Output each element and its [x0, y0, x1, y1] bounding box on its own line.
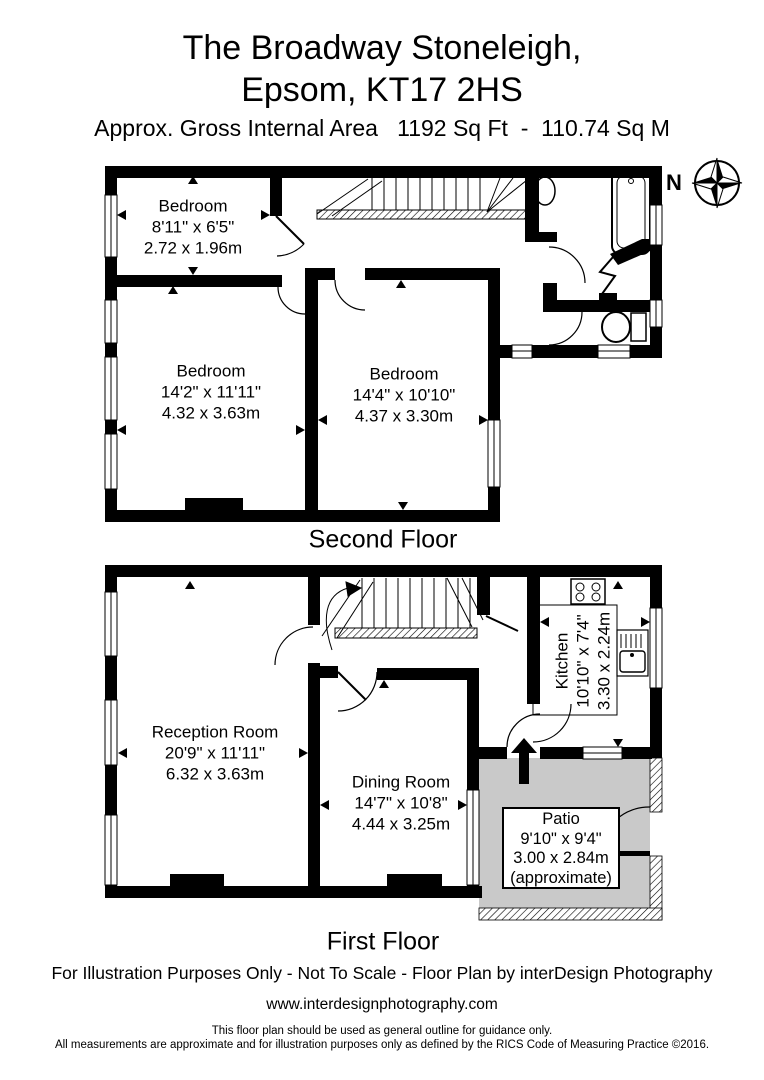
room-dims-imperial: 14'7" x 10'8"	[352, 793, 450, 814]
room-dims-metric: 2.72 x 1.96m	[144, 238, 242, 259]
room-dims-imperial: 14'2" x 11'11"	[161, 382, 261, 403]
room-name: Bedroom	[161, 361, 261, 382]
stairs-icon-first	[322, 578, 483, 650]
room-name: Bedroom	[144, 196, 242, 217]
compass-north-label: N	[666, 170, 682, 196]
room-label-bedroom-right: Bedroom 14'4" x 10'10" 4.37 x 3.30m	[353, 364, 456, 427]
room-name: Bedroom	[353, 364, 456, 385]
room-dims-metric: 4.37 x 3.30m	[353, 406, 456, 427]
room-label-bedroom-left: Bedroom 14'2" x 11'11" 4.32 x 3.63m	[161, 361, 261, 424]
footer-disclaimer-1: This floor plan should be used as genera…	[0, 1025, 764, 1037]
room-label-bedroom-small: Bedroom 8'11" x 6'5" 2.72 x 1.96m	[144, 196, 242, 259]
room-dims-imperial: 9'10" x 9'4"	[504, 830, 618, 850]
room-label-kitchen: Kitchen 10'10" x 7'4" 3.30 x 2.24m	[552, 612, 615, 710]
room-dims-metric: 6.32 x 3.63m	[152, 764, 279, 785]
room-label-patio: Patio 9'10" x 9'4" 3.00 x 2.84m (approxi…	[502, 807, 620, 889]
room-label-reception: Reception Room 20'9" x 11'11" 6.32 x 3.6…	[152, 722, 279, 785]
room-name: Dining Room	[352, 772, 450, 793]
toilet-icon	[602, 312, 646, 342]
folding-door-icon	[600, 257, 615, 294]
room-dims-metric: 3.30 x 2.24m	[594, 612, 615, 710]
room-name: Reception Room	[152, 722, 279, 743]
room-dims-metric: 4.44 x 3.25m	[352, 814, 450, 835]
room-dims-imperial: 10'10" x 7'4"	[573, 612, 594, 710]
room-name: Patio	[504, 810, 618, 830]
hob-icon	[571, 579, 605, 604]
compass-icon	[692, 158, 742, 208]
room-dims-imperial: 20'9" x 11'11"	[152, 743, 279, 764]
footer-disclaimer-2: All measurements are approximate and for…	[0, 1039, 764, 1051]
room-name: Kitchen	[552, 612, 573, 710]
room-dims-metric: 4.32 x 3.63m	[161, 403, 261, 424]
room-dims-imperial: 8'11" x 6'5"	[144, 217, 242, 238]
footer-website: www.interdesignphotography.com	[0, 996, 764, 1014]
first-floor-label: First Floor	[327, 928, 440, 957]
room-label-dining: Dining Room 14'7" x 10'8" 4.44 x 3.25m	[352, 772, 450, 835]
room-dims-imperial: 14'4" x 10'10"	[353, 385, 456, 406]
second-floor-label: Second Floor	[309, 526, 458, 555]
room-dims-metric: 3.00 x 2.84m	[504, 849, 618, 869]
floor-plan-page: The Broadway Stoneleigh, Epsom, KT17 2HS…	[0, 0, 764, 1080]
stairs-icon	[317, 178, 530, 219]
room-note: (approximate)	[504, 869, 618, 889]
footer-illustration-note: For Illustration Purposes Only - Not To …	[0, 963, 764, 984]
kitchen-sink-icon	[617, 630, 648, 676]
